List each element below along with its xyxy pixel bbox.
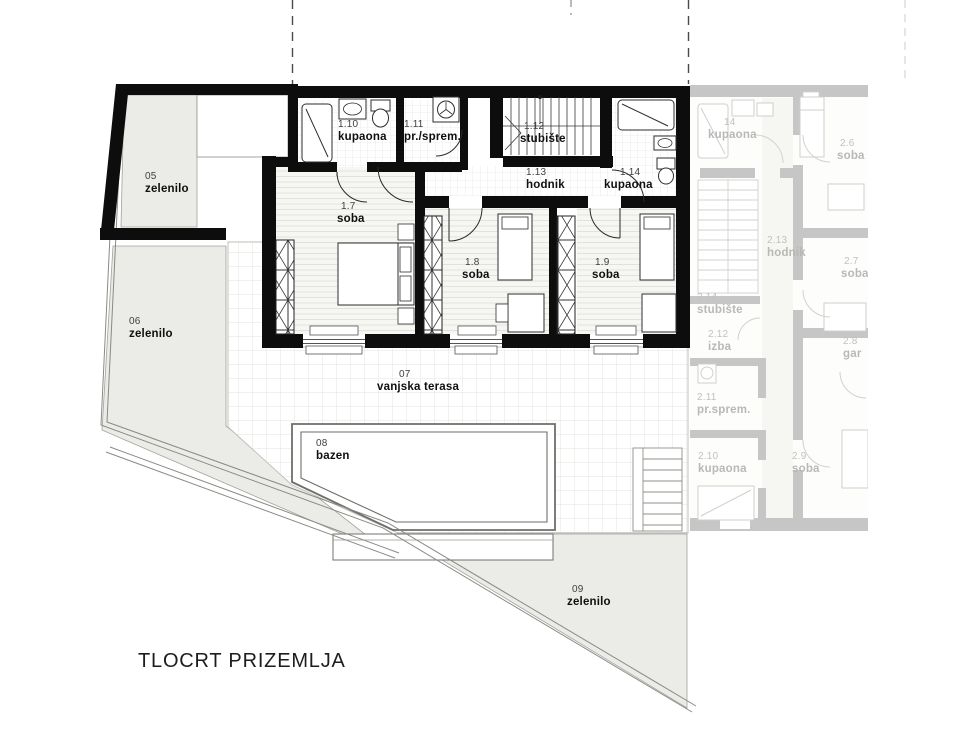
room-label-05: 05 zelenilo: [145, 170, 189, 196]
desk-1-8: [508, 294, 544, 332]
reference-dashed-lines: [293, 0, 906, 84]
room-label-09: 09 zelenilo: [567, 583, 611, 609]
faded-stairs: [698, 180, 758, 293]
desk-1-9: [642, 294, 676, 332]
floor-plan-drawing: [0, 0, 960, 747]
faded-desk: [828, 184, 864, 210]
floor-plan-page: { "title": "TLOCRT PRIZEMLJA", "unit1": …: [0, 0, 960, 747]
toilet-1-14: [657, 158, 675, 169]
room-label-1-13: 1.13 hodnik: [526, 166, 565, 192]
nightstand-1-7: [398, 224, 414, 240]
faded-sink: [732, 100, 754, 116]
nightstand-1-7b: [398, 308, 414, 324]
room-label-08: 08 bazen: [316, 437, 350, 463]
faded-window: [720, 520, 750, 529]
room-label-1-7: 1.7 soba: [337, 200, 365, 226]
room-label-1-9: 1.9 soba: [592, 256, 620, 282]
room-label-1-10: 1.10 kupaona: [338, 118, 387, 144]
room-label-1-11: 1.11 pr./sprem.: [404, 118, 461, 144]
adjacent-unit-faded: [690, 85, 870, 531]
terrace-steps: [633, 448, 682, 531]
faded-wardrobe: [842, 430, 868, 488]
sink-1-10: [339, 99, 366, 119]
room-label-1-14: 1.14 kupaona: [604, 166, 653, 192]
green-area-05: [121, 95, 197, 227]
chair-1-8: [496, 304, 508, 322]
room-label-06: 06 zelenilo: [129, 315, 173, 341]
drawing-title: TLOCRT PRIZEMLJA: [138, 650, 346, 673]
faded-bed: [800, 97, 824, 157]
room-label-1-12: 1.12 stubište: [520, 120, 566, 146]
entry-porch: [197, 95, 288, 157]
room-label-1-8: 1.8 soba: [462, 256, 490, 282]
faded-desk-2: [824, 303, 866, 331]
faded-toilet: [757, 103, 773, 116]
room-label-07: 07 vanjska terasa: [377, 368, 459, 394]
